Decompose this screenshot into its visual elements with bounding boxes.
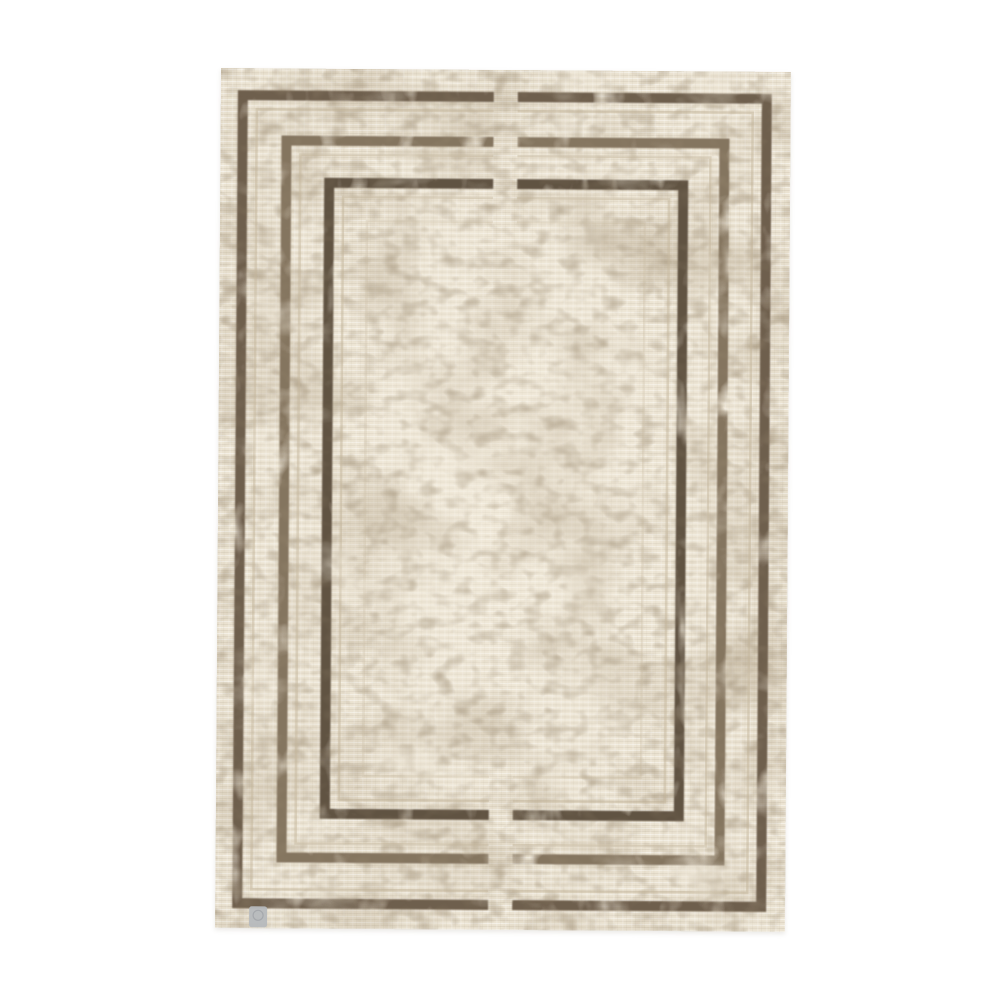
- rug-artwork: [215, 68, 791, 932]
- brand-tag: [249, 906, 267, 927]
- rug: [215, 68, 791, 932]
- texture-top-speckle: [215, 68, 791, 932]
- brand-tag-label: [249, 906, 267, 927]
- photo-canvas: [0, 0, 1000, 1000]
